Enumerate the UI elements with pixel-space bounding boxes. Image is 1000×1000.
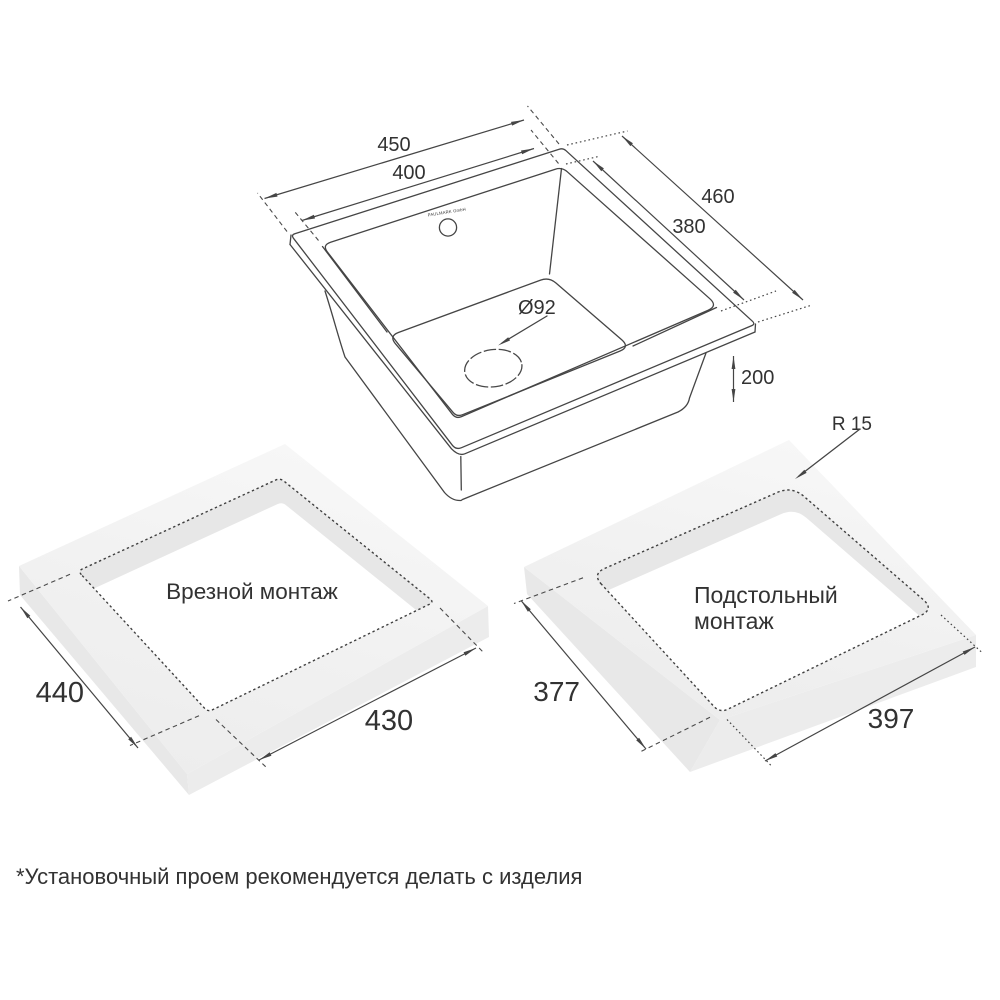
- svg-text:397: 397: [868, 703, 915, 734]
- svg-text:440: 440: [36, 677, 84, 709]
- svg-text:377: 377: [533, 676, 580, 707]
- svg-text:монтаж: монтаж: [694, 608, 774, 634]
- svg-text:450: 450: [377, 134, 410, 156]
- svg-text:PAULMARK GmbH: PAULMARK GmbH: [427, 207, 466, 218]
- svg-text:200: 200: [741, 367, 774, 389]
- svg-text:Подстольный: Подстольный: [694, 582, 838, 608]
- svg-text:R 15: R 15: [832, 414, 872, 435]
- svg-text:460: 460: [701, 186, 734, 208]
- svg-text:*Установочный проем рекомендуе: *Установочный проем рекомендуется делать…: [16, 864, 582, 889]
- svg-text:430: 430: [365, 705, 413, 737]
- svg-text:380: 380: [672, 216, 705, 238]
- svg-text:Ø92: Ø92: [518, 297, 556, 319]
- svg-text:400: 400: [392, 162, 425, 184]
- svg-text:Врезной монтаж: Врезной монтаж: [166, 579, 338, 604]
